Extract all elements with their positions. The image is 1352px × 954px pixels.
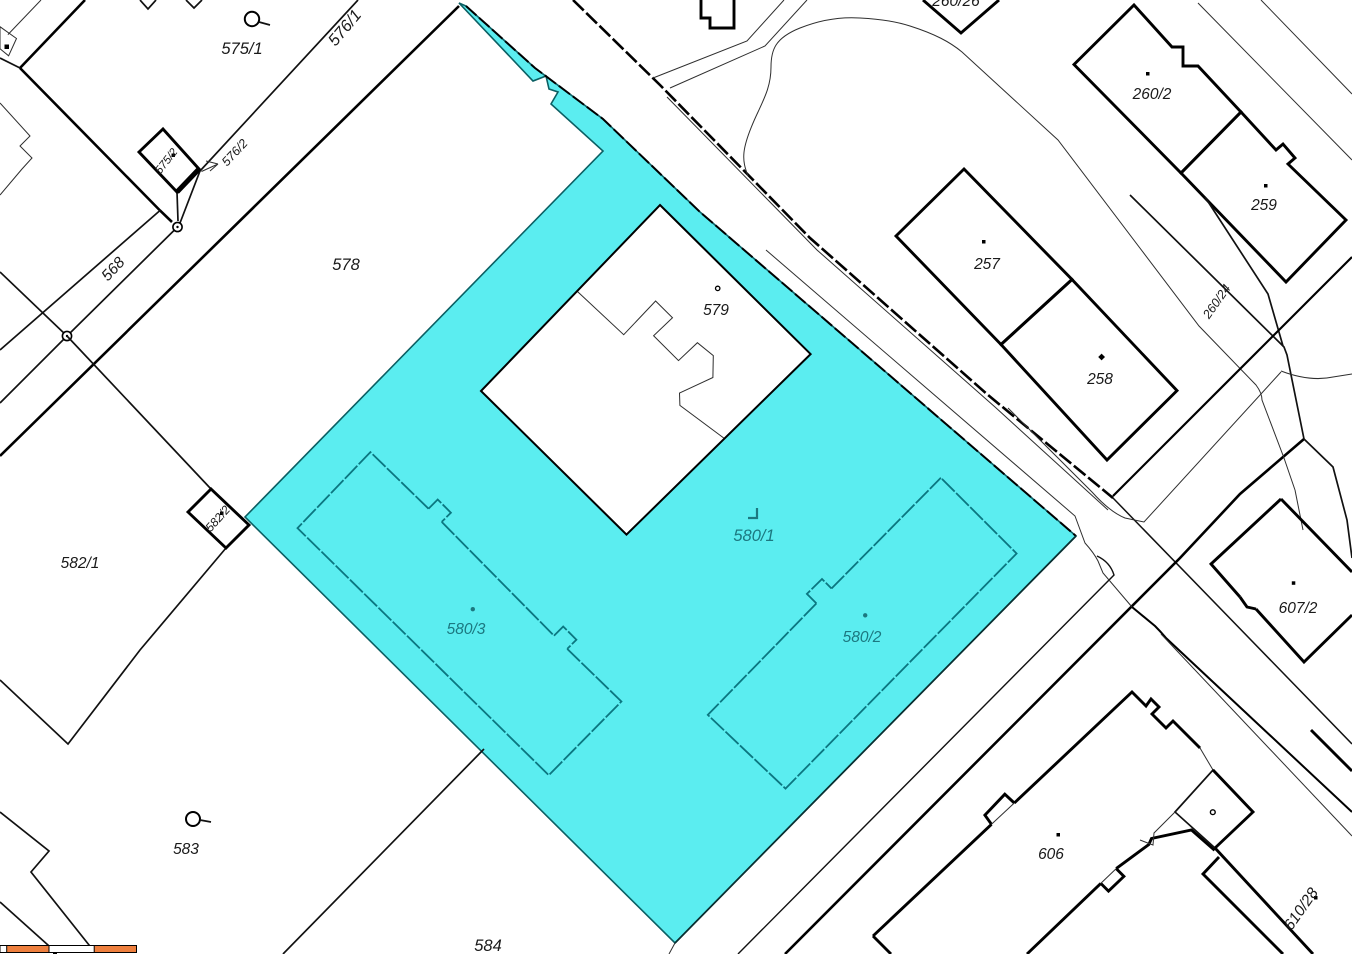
svg-text:583: 583 <box>173 841 199 858</box>
svg-text:582/1: 582/1 <box>61 555 100 572</box>
svg-text:584: 584 <box>474 937 502 954</box>
svg-text:579: 579 <box>703 302 729 319</box>
svg-text:580/3: 580/3 <box>447 621 486 638</box>
svg-text:260/2: 260/2 <box>1132 86 1172 103</box>
svg-text:580/1: 580/1 <box>733 527 774 545</box>
svg-text:258: 258 <box>1086 371 1113 388</box>
svg-text:607/2: 607/2 <box>1279 600 1318 617</box>
svg-text:259: 259 <box>1250 197 1277 214</box>
svg-text:578: 578 <box>332 256 360 274</box>
svg-text:580/2: 580/2 <box>843 629 882 646</box>
svg-text:606: 606 <box>1038 846 1064 863</box>
svg-text:257: 257 <box>973 256 1001 273</box>
svg-text:260/26: 260/26 <box>931 0 980 10</box>
svg-text:575/1: 575/1 <box>221 40 262 58</box>
